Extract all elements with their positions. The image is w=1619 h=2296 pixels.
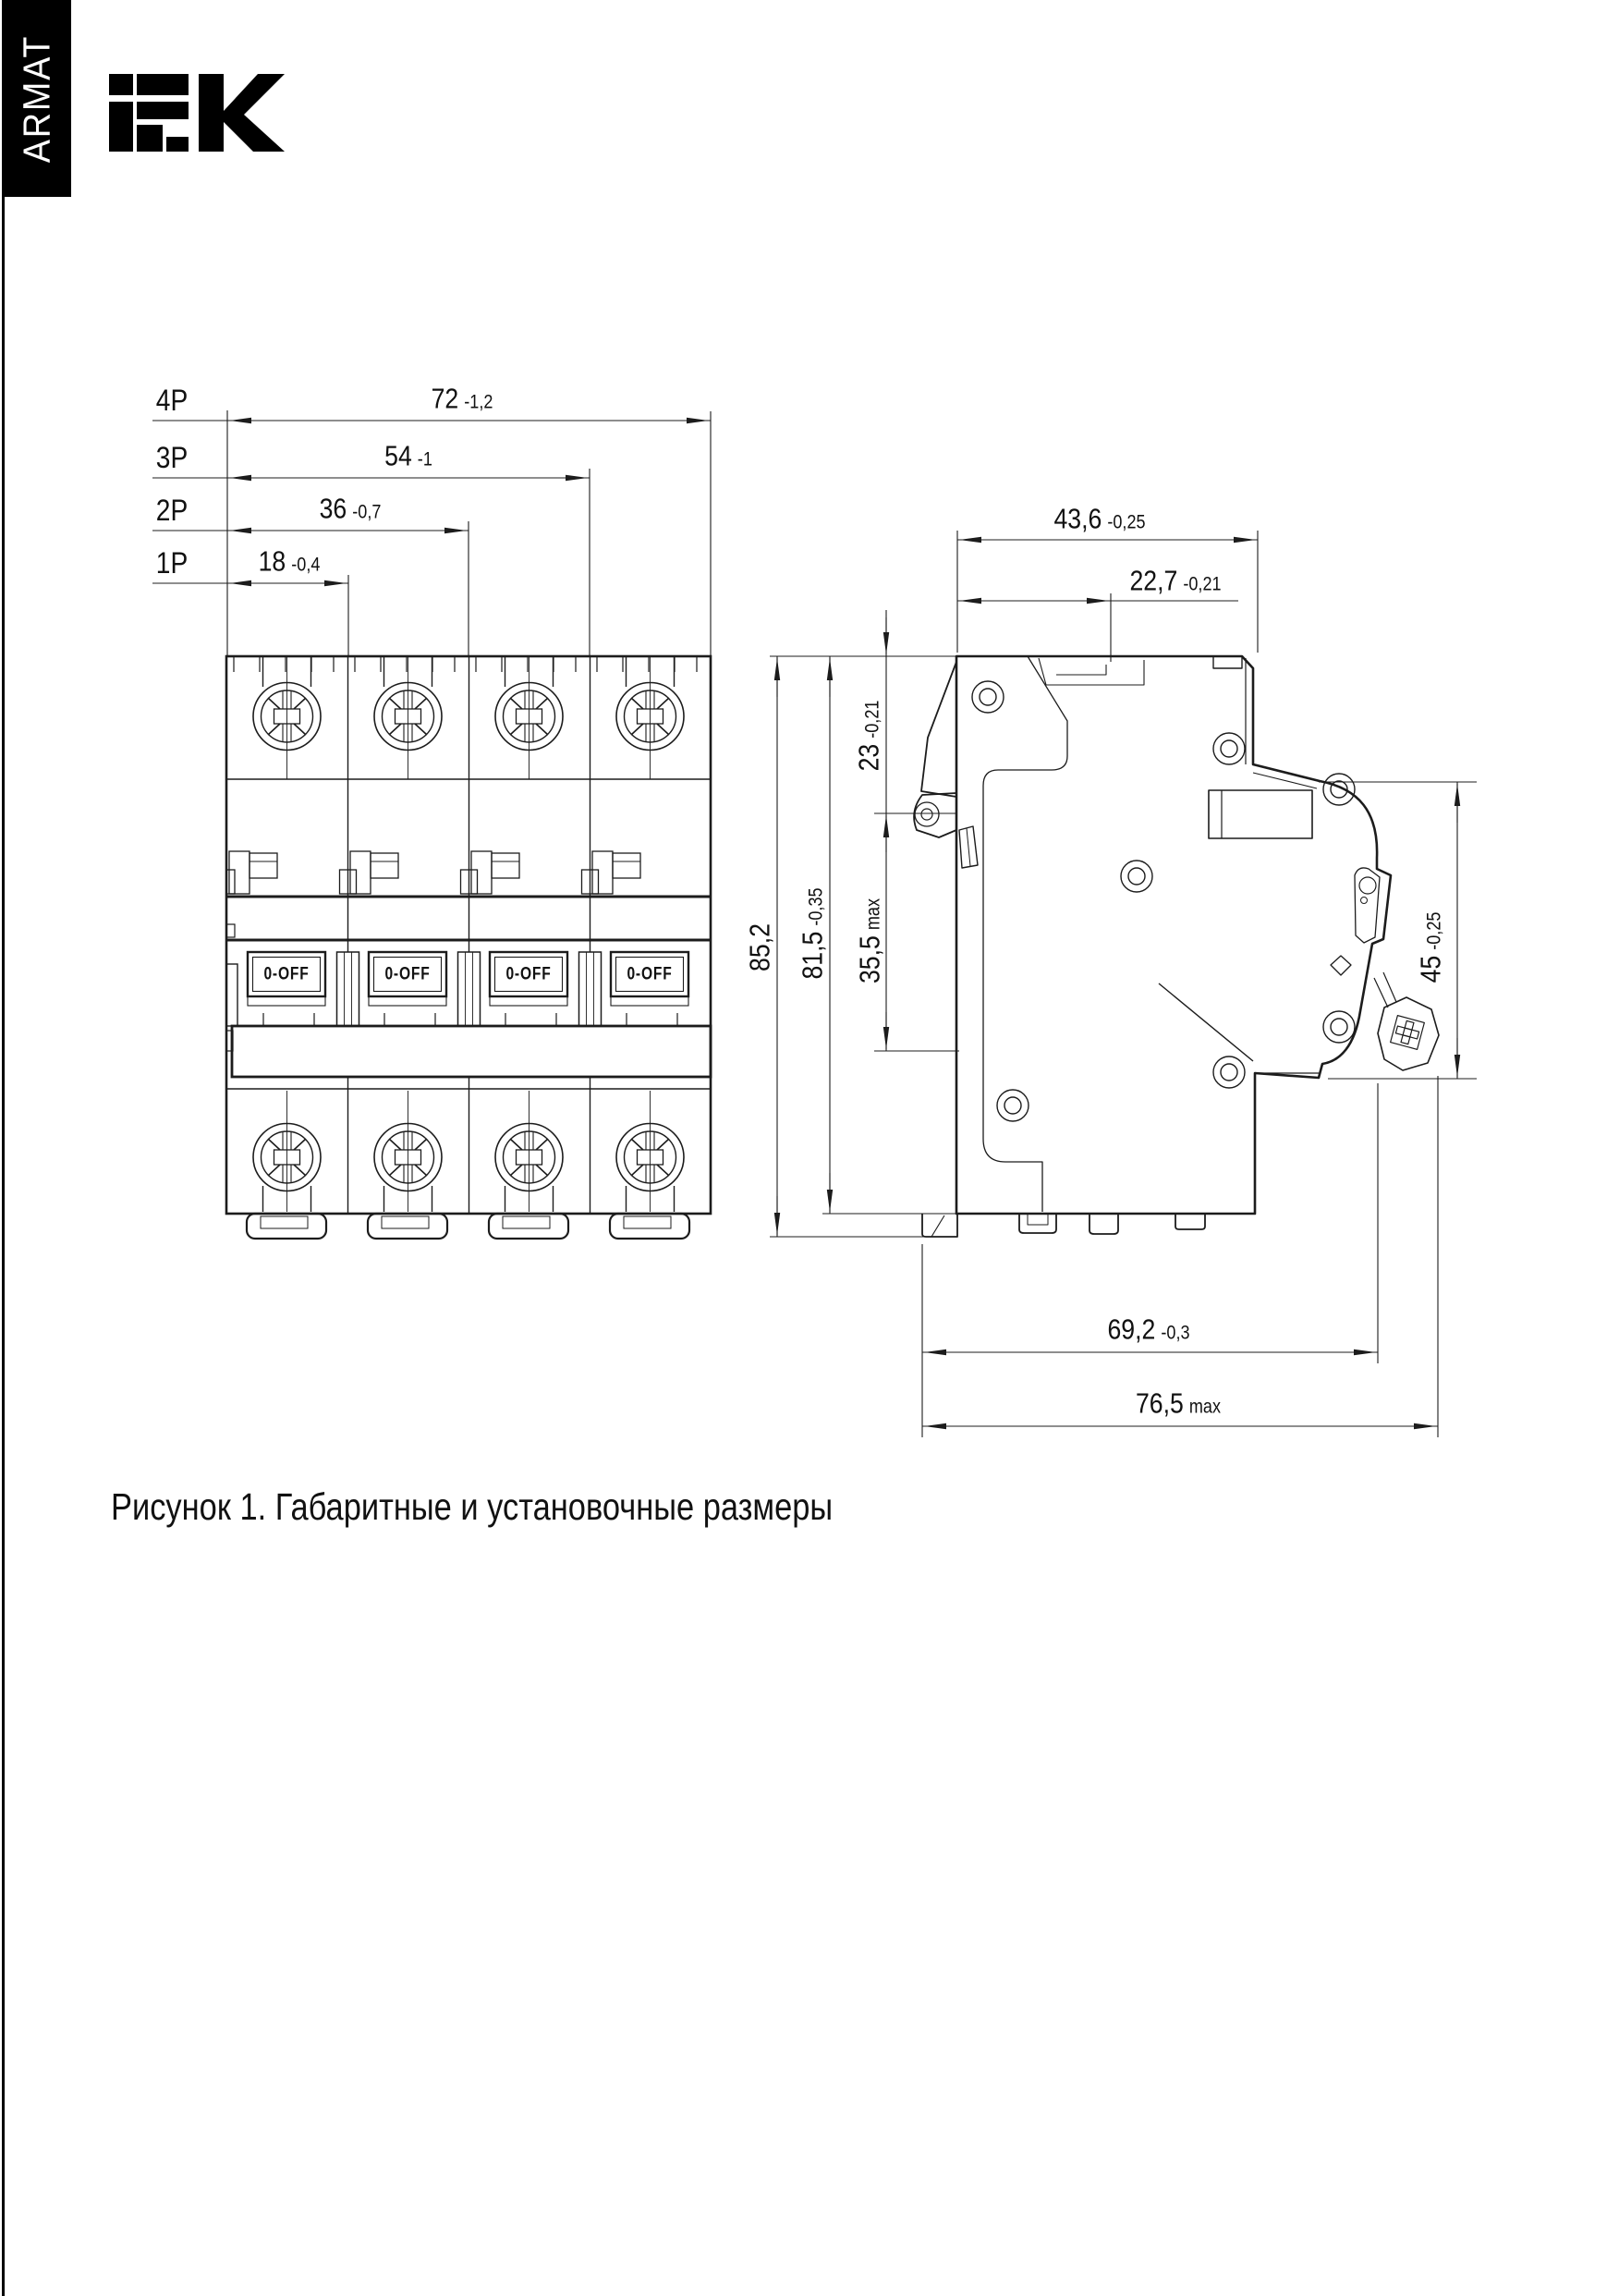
front-view xyxy=(226,656,711,1239)
dim-depth-mount: 69,2-0,3 xyxy=(1107,1315,1189,1344)
toggle-label-2: 0-OFF xyxy=(384,966,430,983)
dim-top-to-clip: 23-0,21 xyxy=(855,701,883,772)
dim-depth-top: 43,6-0,25 xyxy=(1053,505,1145,533)
pole-label-2p: 2P xyxy=(156,495,188,525)
dim-height-body: 81,5-0,35 xyxy=(798,887,827,979)
pole-label-1p: 1P xyxy=(156,548,188,578)
pole-label-3p: 3P xyxy=(156,443,188,472)
dim-rail-zone: 35,5max xyxy=(856,898,884,983)
dim-width-1p: 18-0,4 xyxy=(259,547,321,576)
dim-height-total: 85,2 xyxy=(746,918,774,971)
datasheet-page: ARMAT xyxy=(0,0,1619,2296)
toggle-label-1: 0-OFF xyxy=(263,966,309,983)
dim-width-2p: 36-0,7 xyxy=(320,495,382,523)
technical-drawing xyxy=(0,0,1619,2296)
dim-width-4p: 72-1,2 xyxy=(432,385,493,413)
dim-width-3p: 54-1 xyxy=(384,442,432,470)
side-view xyxy=(914,656,1439,1237)
dim-front-face: 45-0,25 xyxy=(1417,912,1445,983)
figure-caption: Рисунок 1. Габаритные и установочные раз… xyxy=(111,1486,833,1528)
dim-depth-max: 76,5max xyxy=(1136,1389,1221,1418)
toggle-label-4: 0-OFF xyxy=(627,966,672,983)
dim-din-center: 22,7-0,21 xyxy=(1129,567,1221,595)
toggle-label-3: 0-OFF xyxy=(505,966,551,983)
pole-label-4p: 4P xyxy=(156,385,188,415)
